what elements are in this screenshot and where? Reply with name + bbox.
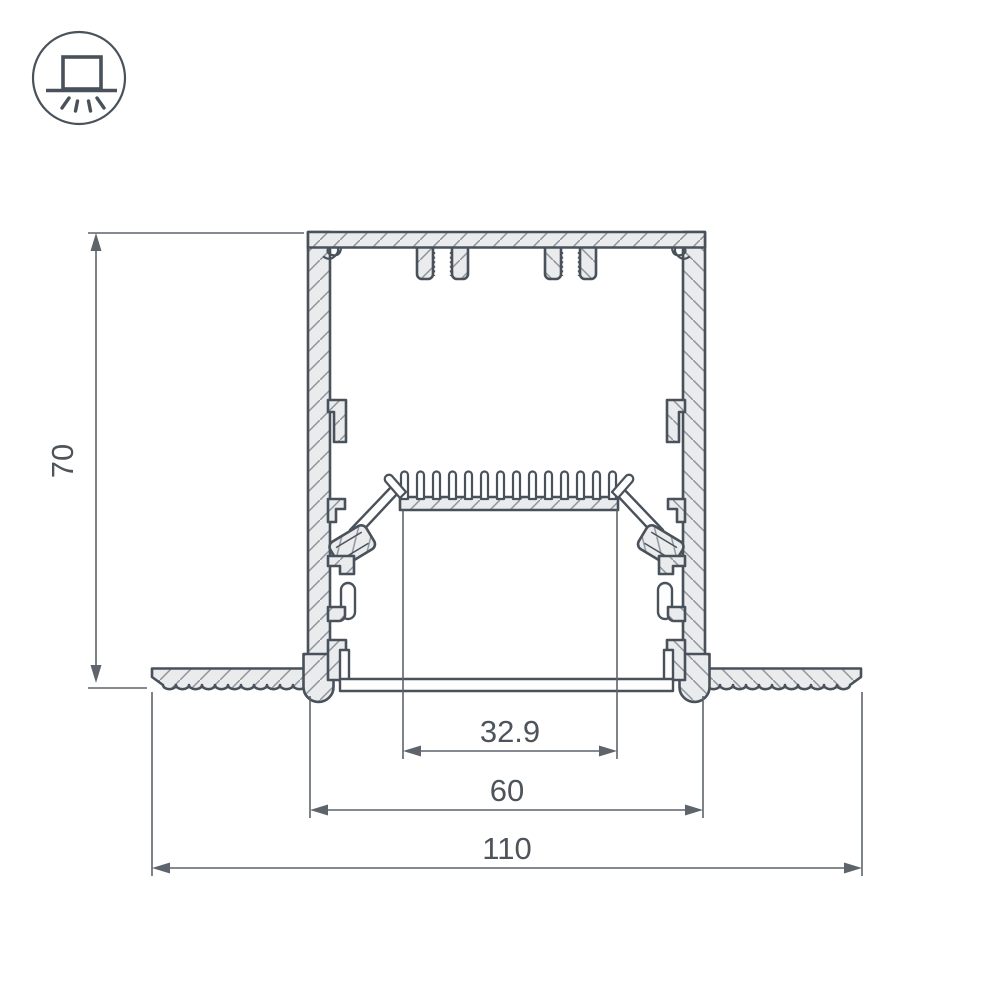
arrowhead [91,665,102,683]
arrowhead [310,805,328,816]
side-wall [308,232,330,672]
icon-circle [33,32,125,124]
profile-right-half [545,232,861,702]
profile-left-half [152,232,468,702]
recessed-light-icon [33,32,125,124]
spring-clip-foot [328,556,354,574]
wall-ledge [328,607,345,621]
dim-label-window: 32.9 [480,714,540,749]
arrowhead [152,863,170,874]
profile-center [308,232,705,691]
screw-boss-prong [452,246,468,279]
arrowhead [685,805,703,816]
arrowhead [403,746,421,757]
dim-label-height: 70 [45,444,80,478]
arrowhead [91,233,102,251]
dim-label-overall: 110 [482,831,531,866]
screw-boss-prong [417,246,433,279]
top-wall [308,232,705,248]
trim-flange [152,669,306,690]
profile-cross-section-drawing: 70 32.9 60 110 [0,0,1000,1000]
dimension-annotations: 70 32.9 60 110 [45,233,862,876]
arrowhead [599,746,617,757]
dim-label-body: 60 [490,773,524,808]
wall-hook-lower [328,499,345,522]
diffuser-end-riser [340,650,349,682]
heatsink-fins [401,472,616,499]
diffuser-plate [340,679,673,691]
arrowhead [844,863,862,874]
